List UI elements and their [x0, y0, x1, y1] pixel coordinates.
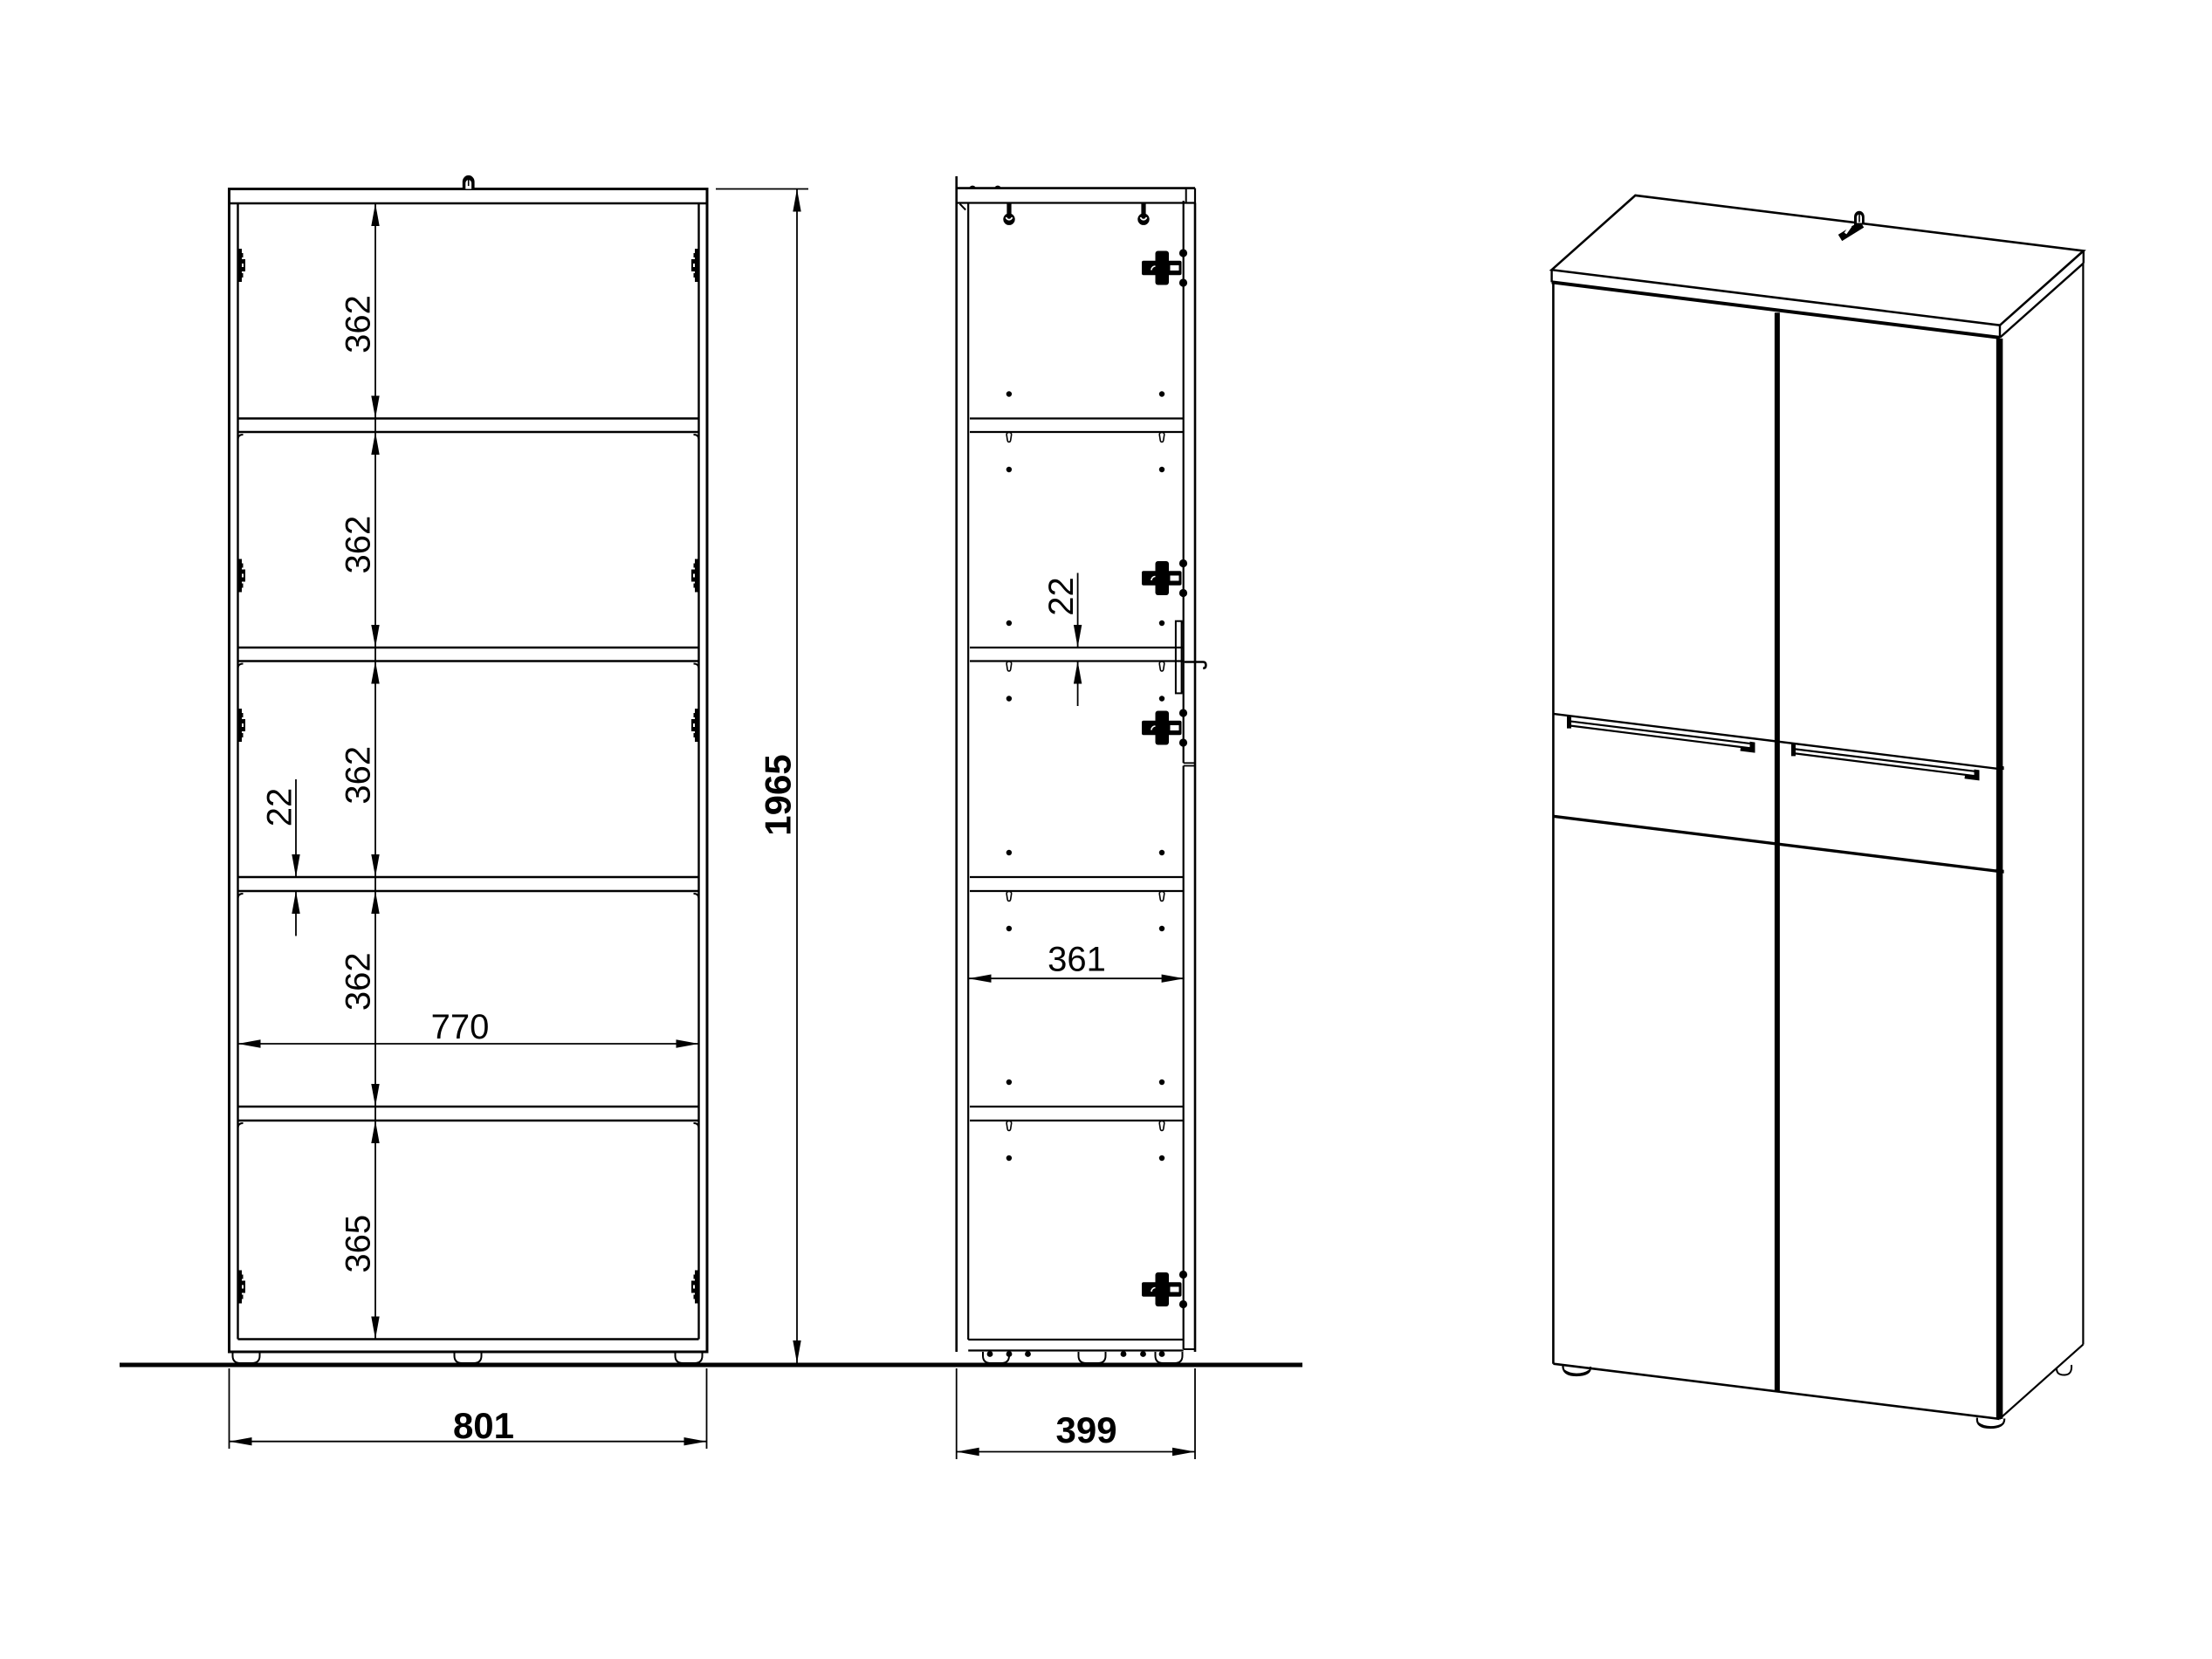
svg-text:365: 365 [340, 1215, 378, 1273]
svg-text:362: 362 [340, 295, 378, 353]
svg-text:22: 22 [1042, 577, 1081, 616]
svg-text:362: 362 [340, 516, 378, 574]
svg-text:22: 22 [261, 788, 299, 827]
svg-text:770: 770 [431, 1008, 490, 1046]
svg-text:361: 361 [1048, 941, 1106, 979]
svg-text:362: 362 [340, 952, 378, 1011]
svg-text:1965: 1965 [758, 754, 799, 835]
svg-text:399: 399 [1056, 1409, 1117, 1450]
svg-text:362: 362 [340, 746, 378, 805]
svg-text:801: 801 [453, 1405, 514, 1446]
